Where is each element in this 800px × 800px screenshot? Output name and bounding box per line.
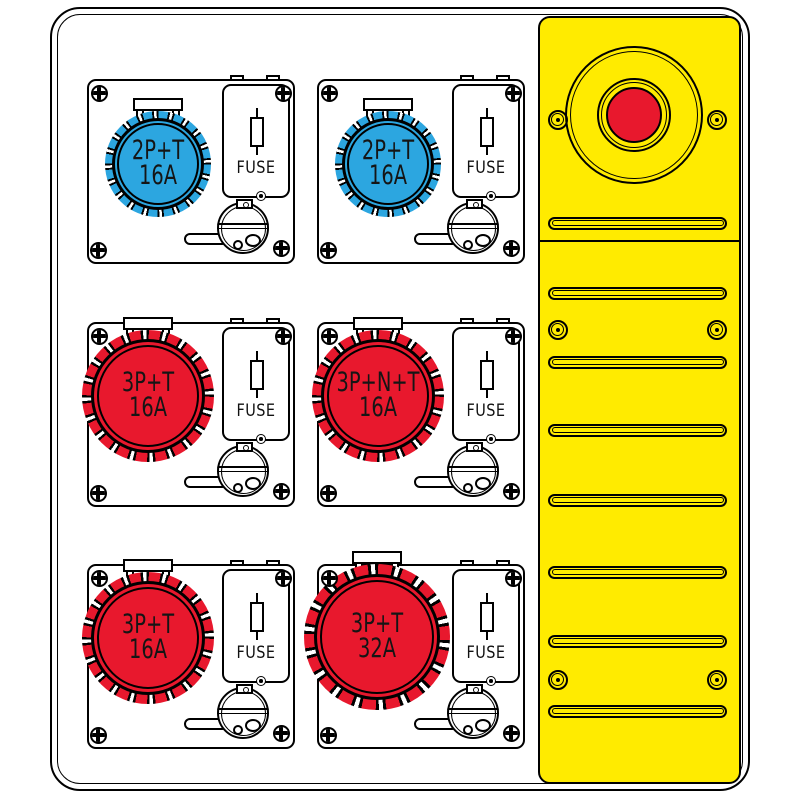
screw-icon [486,676,496,686]
screw-icon [273,483,290,500]
screw-icon [320,727,337,744]
screw-icon [91,85,108,102]
screw-icon [321,85,338,102]
screw-icon [321,328,338,345]
fuse-holder[interactable] [480,117,494,147]
vent-slot [548,424,727,437]
dial-chords [217,687,269,739]
dial-hole [245,234,261,247]
screw-icon [256,434,266,444]
screw-icon [321,570,338,587]
dial-latch-dot [473,687,479,693]
screw-icon [505,328,522,345]
panel-divider [540,240,739,242]
screw-icon [90,485,107,502]
screw-icon [548,320,568,340]
screw-icon [320,485,337,502]
emergency-stop-button[interactable] [606,87,662,143]
vent-slot [548,287,727,300]
fuse-label: FUSE [227,158,285,178]
fuse-label: FUSE [457,158,515,178]
screw-icon [90,727,107,744]
dial-latch-dot [473,202,479,208]
screw-icon [320,242,337,259]
vent-slot [548,217,727,230]
socket-unit-5: FUSE 3P+T16A [87,564,295,749]
vent-slot [548,705,727,718]
dial-hole [233,483,243,493]
screw-icon [90,242,107,259]
socket-rating-label: 3P+T16A [90,612,205,662]
screw-icon [505,85,522,102]
socket-rating-label: 3P+T32A [319,611,434,661]
screw-icon [505,570,522,587]
screw-icon [91,328,108,345]
screw-icon [256,191,266,201]
screw-icon [503,725,520,742]
fuse-holder[interactable] [250,360,264,390]
dial-hole [233,725,243,735]
dial-hole [233,240,243,250]
fuse-holder[interactable] [250,117,264,147]
dial-latch-dot [243,687,249,693]
dial-hole [245,719,261,732]
socket-rating-label: 2P+T16A [100,138,215,188]
screw-icon [486,191,496,201]
dial-chords [447,445,499,497]
lid-hinge [353,317,403,330]
screw-icon [91,570,108,587]
fuse-label: FUSE [227,643,285,663]
vent-slot [548,494,727,507]
screw-icon [275,570,292,587]
screw-icon [503,240,520,257]
vent-slot [548,356,727,369]
dial-latch-dot [243,202,249,208]
socket-unit-6: FUSE 3P+T32A [317,564,525,749]
fuse-holder[interactable] [250,602,264,632]
screw-icon [707,110,727,130]
socket-rating-label: 3P+T16A [90,370,205,420]
dial-hole [245,477,261,490]
lid-hinge [133,98,183,111]
vent-slot [548,635,727,648]
screw-icon [548,110,568,130]
fuse-holder[interactable] [480,360,494,390]
dial-chords [217,445,269,497]
side-panel [538,16,741,784]
dial-latch-dot [473,445,479,451]
socket-unit-2: FUSE 2P+T16A [317,79,525,264]
screw-icon [486,434,496,444]
fuse-label: FUSE [457,401,515,421]
dial-latch-dot [243,445,249,451]
dial-chords [447,687,499,739]
screw-icon [273,725,290,742]
screw-icon [707,670,727,690]
screw-icon [275,85,292,102]
socket-rating-label: 3P+N+T16A [320,370,435,420]
dial-hole [463,725,473,735]
dial-hole [475,234,491,247]
distribution-board: FUSE 2P+T16A FUSE [0,0,800,800]
lid-hinge [123,559,173,572]
fuse-holder[interactable] [480,602,494,632]
dial-hole [475,719,491,732]
socket-unit-3: FUSE 3P+T16A [87,322,295,507]
socket-unit-1: FUSE 2P+T16A [87,79,295,264]
lid-hinge [123,317,173,330]
screw-icon [256,676,266,686]
dial-hole [463,240,473,250]
screw-icon [275,328,292,345]
dial-chords [447,202,499,254]
screw-icon [548,670,568,690]
fuse-label: FUSE [227,401,285,421]
dial-chords [217,202,269,254]
lid-hinge [352,551,402,564]
screw-icon [503,483,520,500]
dial-hole [475,477,491,490]
socket-unit-4: FUSE 3P+N+T16A [317,322,525,507]
screw-icon [273,240,290,257]
fuse-label: FUSE [457,643,515,663]
vent-slot [548,566,727,579]
lid-hinge [363,98,413,111]
socket-rating-label: 2P+T16A [330,138,445,188]
screw-icon [707,320,727,340]
dial-hole [463,483,473,493]
